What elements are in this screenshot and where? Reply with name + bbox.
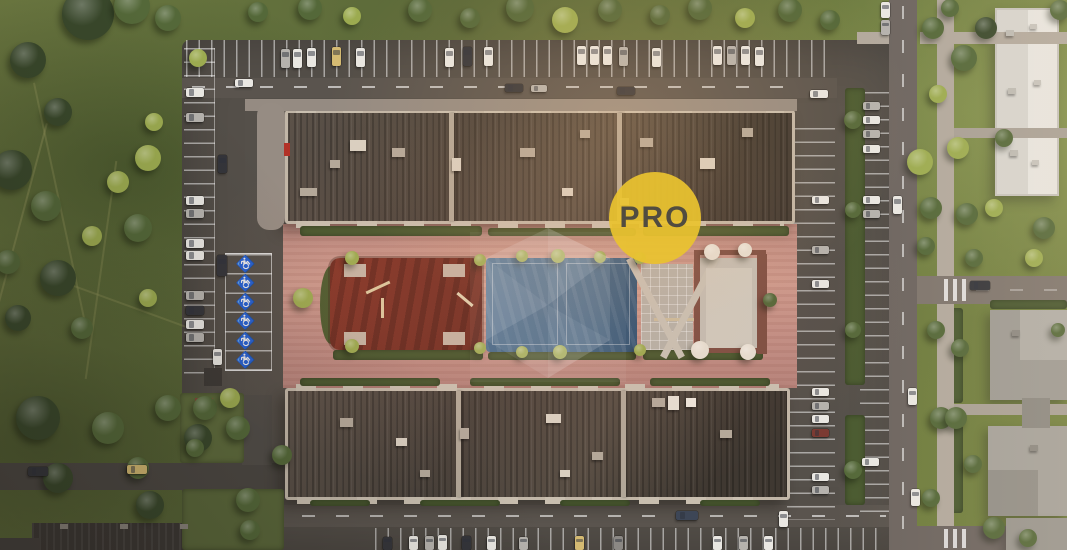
tree bbox=[248, 2, 268, 22]
roof-unit bbox=[396, 438, 407, 446]
tree bbox=[155, 395, 181, 421]
car bbox=[881, 2, 890, 18]
tree bbox=[474, 254, 486, 266]
tree bbox=[1033, 217, 1055, 239]
tree bbox=[738, 243, 752, 257]
tree bbox=[985, 199, 1003, 217]
tree bbox=[995, 129, 1013, 147]
car bbox=[462, 536, 471, 550]
car bbox=[739, 536, 748, 550]
tree bbox=[945, 407, 967, 429]
car bbox=[332, 47, 341, 66]
tree bbox=[107, 171, 129, 193]
tree bbox=[92, 412, 124, 444]
roof-unit bbox=[460, 428, 469, 439]
tree bbox=[293, 288, 313, 308]
tree bbox=[929, 85, 947, 103]
tree bbox=[927, 321, 945, 339]
car bbox=[519, 537, 528, 550]
decor-shape bbox=[988, 470, 1038, 516]
roof-unit bbox=[560, 470, 570, 477]
tree bbox=[5, 305, 31, 331]
roof-unit bbox=[592, 452, 603, 460]
tree bbox=[922, 17, 944, 39]
decor-shape bbox=[245, 99, 797, 111]
roof-unit bbox=[742, 128, 753, 137]
car bbox=[186, 196, 204, 205]
car bbox=[281, 49, 290, 68]
tree bbox=[272, 445, 292, 465]
roof-unit bbox=[350, 140, 366, 151]
car bbox=[810, 90, 828, 98]
tree bbox=[983, 517, 1005, 539]
tree bbox=[10, 42, 46, 78]
tree bbox=[516, 346, 528, 358]
tree bbox=[965, 249, 983, 267]
car bbox=[812, 429, 829, 437]
hedge bbox=[990, 300, 1067, 309]
car bbox=[186, 209, 204, 218]
section-joint bbox=[621, 391, 626, 497]
car bbox=[812, 415, 829, 423]
car bbox=[218, 155, 227, 173]
car bbox=[28, 467, 48, 476]
tree bbox=[845, 202, 861, 218]
car bbox=[812, 196, 829, 204]
tree bbox=[951, 339, 969, 357]
tree bbox=[193, 396, 217, 420]
car bbox=[713, 46, 722, 65]
tree bbox=[907, 149, 933, 175]
car bbox=[186, 251, 204, 260]
tree bbox=[345, 251, 359, 265]
tree bbox=[650, 5, 670, 25]
hedge bbox=[182, 489, 284, 550]
tree bbox=[941, 0, 959, 17]
decor-shape bbox=[706, 268, 752, 348]
car bbox=[863, 196, 880, 204]
car bbox=[127, 465, 147, 474]
tree bbox=[155, 5, 181, 31]
roof-unit bbox=[340, 418, 353, 427]
tree bbox=[553, 345, 567, 359]
car bbox=[356, 48, 365, 67]
car bbox=[425, 536, 434, 550]
car bbox=[186, 320, 204, 329]
decor-shape bbox=[120, 524, 128, 529]
tree bbox=[139, 289, 157, 307]
car bbox=[603, 46, 612, 65]
car bbox=[863, 116, 880, 124]
lane-marking bbox=[902, 6, 904, 544]
car bbox=[617, 87, 635, 95]
building-block-north bbox=[285, 110, 795, 224]
tree bbox=[845, 322, 861, 338]
car bbox=[445, 48, 454, 67]
car bbox=[764, 536, 773, 550]
car bbox=[970, 281, 990, 290]
lane-marking bbox=[192, 86, 804, 88]
roof-unit bbox=[420, 470, 430, 477]
decor-shape bbox=[204, 368, 222, 386]
tree bbox=[778, 0, 802, 22]
car bbox=[213, 349, 222, 365]
car bbox=[186, 113, 204, 122]
decor-shape bbox=[257, 103, 285, 230]
car bbox=[186, 306, 204, 315]
car bbox=[862, 458, 879, 466]
car bbox=[863, 102, 880, 110]
pro-watermark-text: PRO bbox=[619, 201, 690, 235]
roof-unit bbox=[300, 188, 317, 196]
car bbox=[186, 333, 204, 342]
car bbox=[741, 46, 750, 65]
car bbox=[779, 511, 788, 527]
roof-unit bbox=[452, 158, 461, 171]
tree bbox=[135, 145, 161, 171]
car bbox=[307, 48, 316, 67]
tree bbox=[551, 249, 565, 263]
tree bbox=[71, 317, 93, 339]
roof-unit bbox=[520, 148, 535, 157]
decor-shape bbox=[180, 524, 188, 529]
decor-shape bbox=[284, 143, 290, 156]
car bbox=[713, 536, 722, 550]
roof-unit bbox=[1010, 150, 1018, 156]
decor-shape bbox=[344, 264, 366, 277]
tree bbox=[688, 0, 712, 20]
roof-unit bbox=[1034, 80, 1041, 85]
car bbox=[531, 85, 547, 92]
car bbox=[881, 20, 890, 35]
car bbox=[590, 46, 599, 65]
tree bbox=[922, 489, 940, 507]
car bbox=[217, 255, 227, 276]
decor-shape bbox=[954, 404, 1067, 415]
car bbox=[863, 130, 880, 138]
tree bbox=[735, 8, 755, 28]
tree bbox=[1019, 529, 1037, 547]
car bbox=[505, 84, 523, 92]
roof-unit bbox=[580, 130, 590, 138]
car bbox=[619, 47, 628, 66]
roof-unit bbox=[720, 430, 732, 438]
car bbox=[438, 535, 447, 550]
car bbox=[293, 49, 302, 68]
roof-unit bbox=[668, 396, 679, 410]
tree bbox=[552, 7, 578, 33]
hedge bbox=[700, 500, 760, 506]
section-joint bbox=[456, 391, 461, 497]
tree bbox=[226, 416, 250, 440]
roof-unit bbox=[392, 148, 405, 157]
tree bbox=[594, 251, 606, 263]
roof-unit bbox=[1030, 24, 1037, 29]
car bbox=[577, 46, 586, 65]
tree bbox=[598, 0, 622, 22]
tree bbox=[516, 250, 528, 262]
tree bbox=[956, 203, 978, 225]
tree bbox=[820, 10, 840, 30]
tree bbox=[947, 137, 969, 159]
decor-shape bbox=[443, 332, 465, 345]
car bbox=[812, 246, 829, 254]
tree bbox=[763, 293, 777, 307]
tree bbox=[136, 491, 164, 519]
car bbox=[812, 402, 829, 410]
tree bbox=[44, 98, 72, 126]
tree bbox=[114, 0, 150, 24]
building-bottom-left-2 bbox=[0, 538, 40, 550]
tree bbox=[220, 388, 240, 408]
car bbox=[652, 48, 661, 67]
tree bbox=[0, 150, 32, 190]
tree bbox=[460, 8, 480, 28]
hedge bbox=[650, 378, 770, 386]
hedge bbox=[300, 226, 482, 236]
tree bbox=[844, 111, 862, 129]
tree bbox=[740, 344, 756, 360]
tree bbox=[16, 396, 60, 440]
car bbox=[893, 196, 902, 214]
car bbox=[676, 511, 698, 520]
roof-unit bbox=[1006, 30, 1014, 36]
roof-unit bbox=[330, 160, 340, 168]
tree bbox=[345, 339, 359, 353]
hedge bbox=[470, 378, 620, 386]
tree bbox=[31, 191, 61, 221]
roof-unit bbox=[652, 398, 665, 407]
tree bbox=[298, 0, 322, 20]
court-line bbox=[566, 263, 630, 345]
tree bbox=[474, 342, 486, 354]
roof-unit bbox=[700, 158, 715, 169]
decor-shape bbox=[443, 264, 465, 277]
hedge bbox=[845, 88, 865, 385]
roof-unit bbox=[686, 398, 696, 407]
roof-unit bbox=[546, 414, 561, 423]
tree bbox=[1025, 249, 1043, 267]
car bbox=[812, 486, 829, 494]
car bbox=[911, 489, 920, 506]
car bbox=[575, 536, 584, 550]
car bbox=[409, 536, 418, 550]
car bbox=[812, 388, 829, 396]
car bbox=[812, 473, 829, 481]
hedge bbox=[420, 500, 500, 506]
tree bbox=[343, 7, 361, 25]
tree bbox=[691, 341, 709, 359]
roof-unit bbox=[1032, 160, 1039, 165]
sports-court-blue bbox=[486, 258, 637, 352]
car bbox=[908, 388, 917, 405]
tree bbox=[1050, 0, 1067, 20]
tree bbox=[186, 439, 204, 457]
roof-unit bbox=[1008, 88, 1016, 94]
car bbox=[186, 239, 204, 248]
car bbox=[235, 79, 253, 87]
car bbox=[186, 88, 204, 97]
crosswalk bbox=[944, 279, 968, 301]
decor-shape bbox=[381, 298, 384, 318]
car bbox=[463, 47, 472, 66]
car bbox=[863, 145, 880, 153]
roof-unit bbox=[562, 188, 573, 196]
building-block-south bbox=[285, 388, 790, 500]
roof-unit bbox=[1030, 445, 1038, 451]
tree bbox=[964, 455, 982, 473]
tree bbox=[1051, 323, 1065, 337]
tree bbox=[917, 237, 935, 255]
tree bbox=[124, 214, 152, 242]
decor-shape bbox=[85, 161, 118, 379]
tree bbox=[82, 226, 102, 246]
hedge bbox=[310, 500, 370, 506]
pro-watermark-badge: PRO bbox=[609, 172, 701, 264]
gray-building-3 bbox=[1006, 518, 1067, 550]
tree bbox=[189, 49, 207, 67]
car bbox=[186, 291, 204, 300]
tree bbox=[975, 17, 997, 39]
roof-unit bbox=[640, 138, 653, 147]
car bbox=[812, 280, 829, 288]
tree bbox=[704, 244, 720, 260]
decor-shape bbox=[1022, 398, 1050, 428]
tree bbox=[634, 344, 646, 356]
parking-stalls-bottom bbox=[375, 528, 880, 550]
roof-unit bbox=[1012, 330, 1020, 336]
tree bbox=[951, 45, 977, 71]
tree bbox=[240, 520, 260, 540]
tree bbox=[920, 197, 942, 219]
hedge bbox=[300, 378, 440, 386]
tree bbox=[844, 461, 862, 479]
tree bbox=[62, 0, 114, 40]
tree bbox=[40, 260, 76, 296]
tree bbox=[408, 0, 432, 22]
car bbox=[487, 536, 496, 550]
car bbox=[727, 46, 736, 65]
hedge bbox=[560, 500, 630, 506]
tree bbox=[506, 0, 534, 22]
car bbox=[484, 47, 493, 66]
court-line bbox=[492, 263, 558, 345]
crosswalk bbox=[944, 529, 968, 548]
tree bbox=[236, 488, 260, 512]
car bbox=[863, 210, 880, 218]
aerial-photo: ♿♿♿♿♿♿ PRO bbox=[0, 0, 1067, 550]
decor-shape bbox=[60, 524, 68, 529]
car bbox=[614, 536, 623, 550]
tree bbox=[145, 113, 163, 131]
car bbox=[755, 47, 764, 66]
car bbox=[383, 537, 392, 550]
tree bbox=[0, 250, 20, 274]
